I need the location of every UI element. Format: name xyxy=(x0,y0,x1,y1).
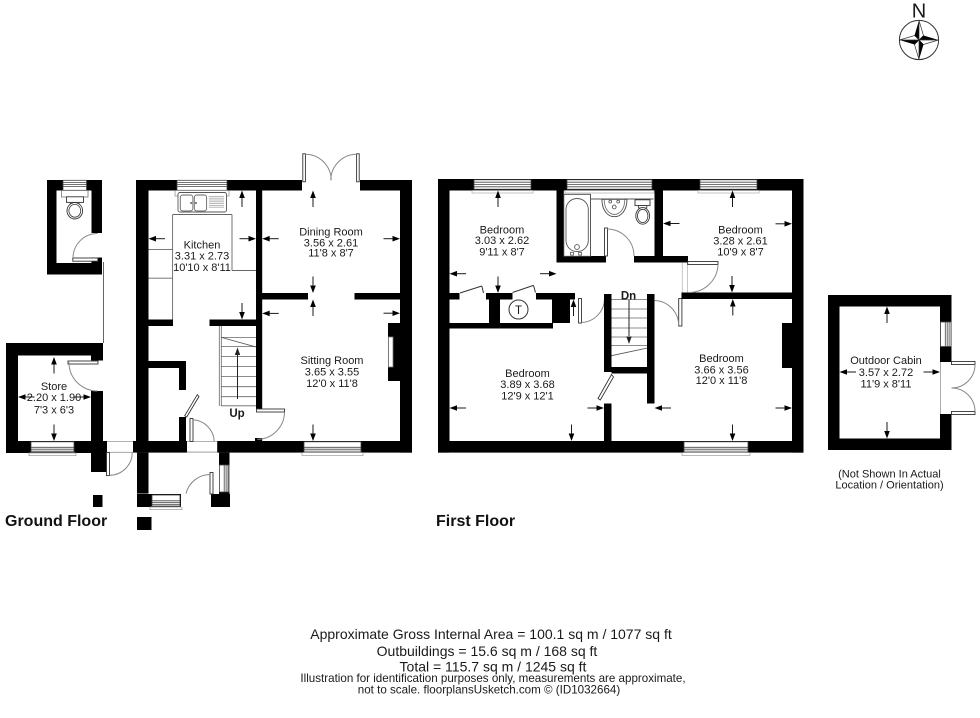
svg-text:Bedroom: Bedroom xyxy=(699,353,744,365)
svg-text:T: T xyxy=(515,305,522,317)
svg-text:11'9 x 8'11: 11'9 x 8'11 xyxy=(861,379,912,391)
svg-text:3.03 x 2.62: 3.03 x 2.62 xyxy=(475,235,529,247)
svg-text:Outdoor Cabin: Outdoor Cabin xyxy=(850,355,922,367)
svg-text:12'0 x 11'8: 12'0 x 11'8 xyxy=(696,375,748,387)
svg-text:Dn: Dn xyxy=(621,291,636,303)
svg-text:2.20 x 1.90: 2.20 x 1.90 xyxy=(27,392,81,404)
svg-text:10'9 x 8'7: 10'9 x 8'7 xyxy=(717,247,763,259)
svg-text:First Floor: First Floor xyxy=(436,513,515,530)
svg-text:3.31 x 2.73: 3.31 x 2.73 xyxy=(175,251,229,263)
svg-text:Up: Up xyxy=(229,408,244,420)
svg-text:7'3 x 6'3: 7'3 x 6'3 xyxy=(34,405,74,417)
svg-text:12'9 x 12'1: 12'9 x 12'1 xyxy=(501,390,554,402)
svg-text:3.57 x 2.72: 3.57 x 2.72 xyxy=(859,367,913,379)
svg-text:11'8 x 8'7: 11'8 x 8'7 xyxy=(308,247,354,259)
svg-text:Location / Orientation): Location / Orientation) xyxy=(835,480,943,492)
svg-text:3.28 x 2.61: 3.28 x 2.61 xyxy=(713,235,767,247)
svg-text:9'11 x 8'7: 9'11 x 8'7 xyxy=(479,247,525,259)
svg-text:Kitchen: Kitchen xyxy=(184,240,221,252)
svg-text:10'10 x 8'11: 10'10 x 8'11 xyxy=(173,262,231,274)
svg-text:3.65 x 3.55: 3.65 x 3.55 xyxy=(305,367,359,379)
svg-text:3.89 x 3.68: 3.89 x 3.68 xyxy=(500,379,554,391)
svg-text:12'0 x 11'8: 12'0 x 11'8 xyxy=(306,378,358,390)
svg-text:Ground Floor: Ground Floor xyxy=(5,513,107,530)
svg-text:Sitting Room: Sitting Room xyxy=(301,355,364,367)
svg-text:Approximate Gross Internal Are: Approximate Gross Internal Area = 100.1 … xyxy=(310,626,672,642)
svg-text:Outbuildings = 15.6 sq m / 168: Outbuildings = 15.6 sq m / 168 sq ft xyxy=(377,643,598,659)
svg-text:N: N xyxy=(912,0,926,22)
svg-text:not to scale. floorplansUsketc: not to scale. floorplansUsketch.com © (I… xyxy=(358,684,621,697)
